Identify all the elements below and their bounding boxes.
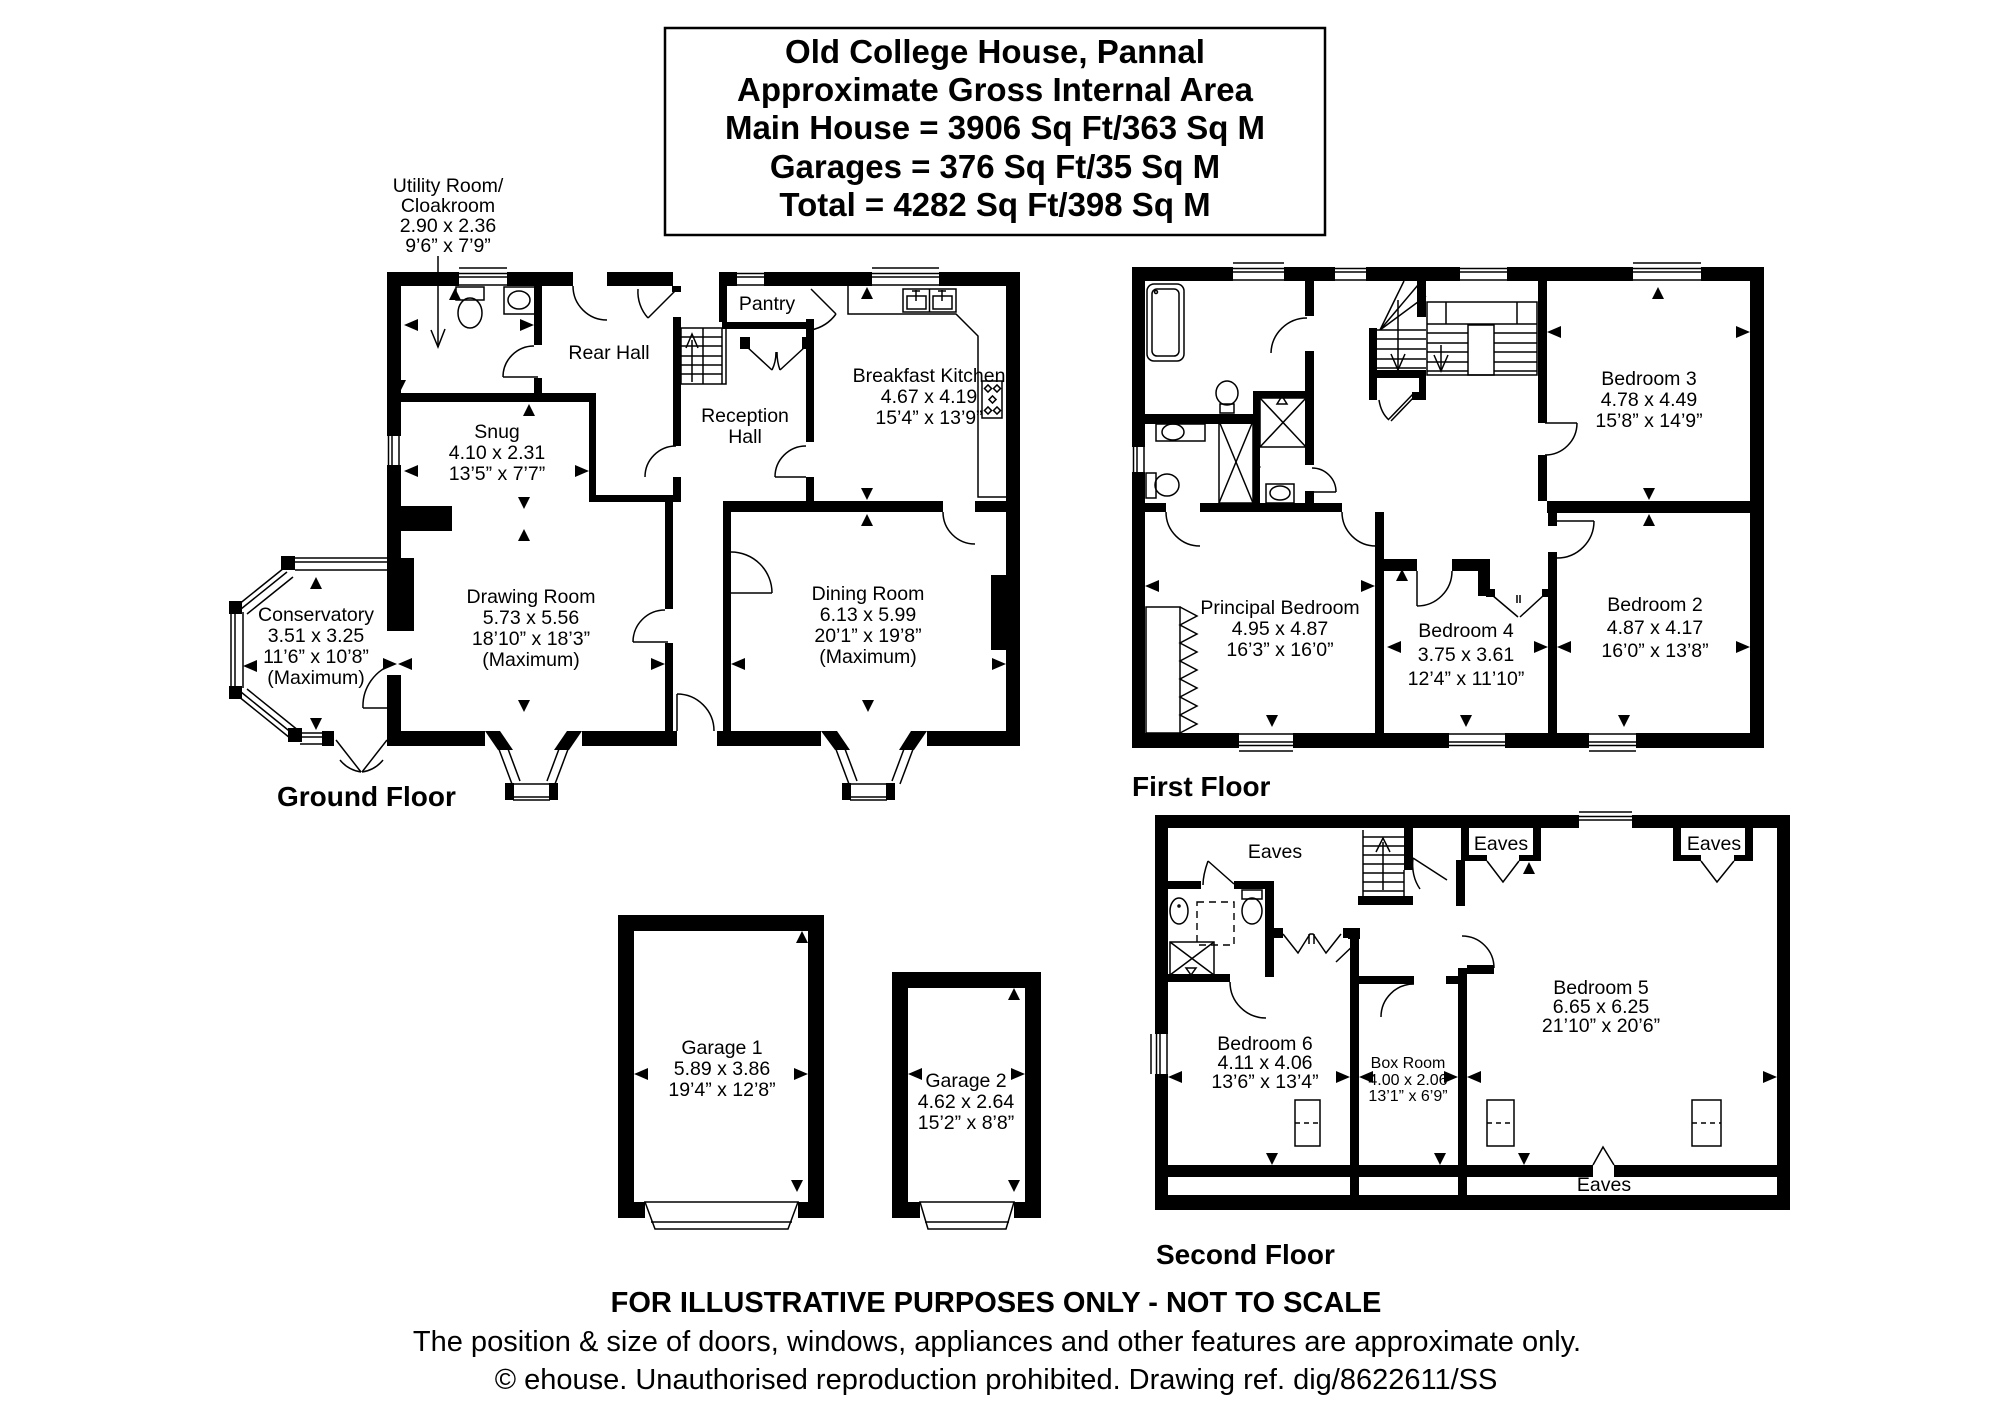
svg-text:Bedroom 4: Bedroom 4: [1418, 620, 1514, 642]
svg-text:5.89 x 3.86: 5.89 x 3.86: [674, 1058, 771, 1080]
svg-text:6.13 x 5.99: 6.13 x 5.99: [820, 604, 917, 626]
svg-text:Breakfast Kitchen: Breakfast Kitchen: [853, 365, 1006, 387]
svg-text:Pantry: Pantry: [739, 293, 796, 315]
svg-text:Garage 1: Garage 1: [681, 1037, 762, 1059]
svg-text:Conservatory: Conservatory: [258, 604, 374, 626]
svg-text:4.00 x 2.06: 4.00 x 2.06: [1368, 1072, 1447, 1089]
svg-text:Rear Hall: Rear Hall: [568, 342, 649, 364]
svg-text:3.51 x 3.25: 3.51 x 3.25: [268, 625, 365, 647]
svg-text:4.78 x 4.49: 4.78 x 4.49: [1601, 389, 1698, 411]
svg-text:4.95 x 4.87: 4.95 x 4.87: [1232, 618, 1329, 640]
svg-text:Main House = 3906 Sq Ft/363 Sq: Main House = 3906 Sq Ft/363 Sq M: [725, 109, 1265, 146]
svg-text:4.10 x 2.31: 4.10 x 2.31: [449, 442, 546, 464]
svg-text:4.67 x 4.19: 4.67 x 4.19: [881, 386, 978, 408]
svg-text:15’2” x 8’8”: 15’2” x 8’8”: [918, 1112, 1014, 1134]
svg-text:13’1” x 6’9”: 13’1” x 6’9”: [1368, 1088, 1447, 1105]
svg-text:(Maximum): (Maximum): [819, 646, 917, 668]
svg-text:© ehouse. Unauthorised reprodu: © ehouse. Unauthorised reproduction proh…: [495, 1364, 1498, 1396]
svg-text:Garages = 376 Sq Ft/35 Sq M: Garages = 376 Sq Ft/35 Sq M: [770, 148, 1220, 185]
svg-text:4.62 x 2.64: 4.62 x 2.64: [918, 1091, 1015, 1113]
svg-text:Garage 2: Garage 2: [925, 1070, 1006, 1092]
svg-text:Eaves: Eaves: [1248, 841, 1302, 863]
svg-text:Principal Bedroom: Principal Bedroom: [1200, 597, 1359, 619]
svg-text:Hall: Hall: [728, 426, 762, 448]
svg-text:Bedroom 3: Bedroom 3: [1601, 368, 1696, 390]
svg-text:(Maximum): (Maximum): [267, 667, 365, 689]
svg-text:13’5” x 7’7”: 13’5” x 7’7”: [449, 463, 545, 485]
svg-text:Second Floor: Second Floor: [1156, 1239, 1335, 1270]
svg-text:13’6” x 13’4”: 13’6” x 13’4”: [1211, 1071, 1318, 1093]
svg-text:Utility Room/: Utility Room/: [393, 175, 504, 197]
svg-text:20’1” x 19’8”: 20’1” x 19’8”: [814, 625, 921, 647]
svg-text:18’10” x 18’3”: 18’10” x 18’3”: [472, 628, 590, 650]
svg-text:11’6” x 10’8”: 11’6” x 10’8”: [263, 646, 369, 668]
svg-text:Reception: Reception: [701, 405, 789, 427]
svg-text:Snug: Snug: [474, 421, 520, 443]
svg-text:Drawing Room: Drawing Room: [467, 586, 596, 608]
svg-text:19’4” x 12’8”: 19’4” x 12’8”: [668, 1079, 775, 1101]
svg-text:4.87 x 4.17: 4.87 x 4.17: [1607, 617, 1704, 639]
svg-text:Eaves: Eaves: [1474, 833, 1528, 855]
svg-text:21’10” x 20’6”: 21’10” x 20’6”: [1542, 1015, 1660, 1037]
svg-text:Cloakroom: Cloakroom: [401, 195, 495, 217]
svg-text:Bedroom 2: Bedroom 2: [1607, 594, 1702, 616]
svg-text:9’6” x 7’9”: 9’6” x 7’9”: [405, 235, 491, 257]
svg-text:15’8” x 14’9”: 15’8” x 14’9”: [1595, 410, 1702, 432]
svg-text:16’0” x 13’8”: 16’0” x 13’8”: [1601, 640, 1708, 662]
svg-text:First Floor: First Floor: [1132, 771, 1271, 802]
svg-text:Box Room: Box Room: [1371, 1055, 1446, 1072]
svg-text:2.90 x 2.36: 2.90 x 2.36: [400, 215, 497, 237]
svg-text:Old College House, Pannal: Old College House, Pannal: [785, 33, 1205, 70]
svg-text:Eaves: Eaves: [1577, 1174, 1631, 1196]
svg-text:Total = 4282 Sq Ft/398 Sq M: Total = 4282 Sq Ft/398 Sq M: [779, 186, 1210, 223]
svg-text:Approximate Gross Internal Are: Approximate Gross Internal Area: [737, 71, 1254, 108]
svg-text:Dining Room: Dining Room: [812, 583, 925, 605]
svg-text:Ground Floor: Ground Floor: [277, 781, 456, 812]
svg-text:(Maximum): (Maximum): [482, 649, 580, 671]
svg-text:FOR ILLUSTRATIVE PURPOSES ONLY: FOR ILLUSTRATIVE PURPOSES ONLY - NOT TO …: [611, 1287, 1382, 1319]
svg-text:15’4” x 13’9”: 15’4” x 13’9”: [875, 407, 982, 429]
svg-text:The position & size of doors,: The position & size of doors, windows, a…: [413, 1326, 1581, 1358]
svg-text:16’3” x 16’0”: 16’3” x 16’0”: [1226, 639, 1333, 661]
svg-text:5.73 x 5.56: 5.73 x 5.56: [483, 607, 580, 629]
svg-text:12’4” x 11’10”: 12’4” x 11’10”: [1408, 668, 1525, 690]
svg-text:3.75 x 3.61: 3.75 x 3.61: [1418, 644, 1515, 666]
svg-text:Eaves: Eaves: [1687, 833, 1741, 855]
